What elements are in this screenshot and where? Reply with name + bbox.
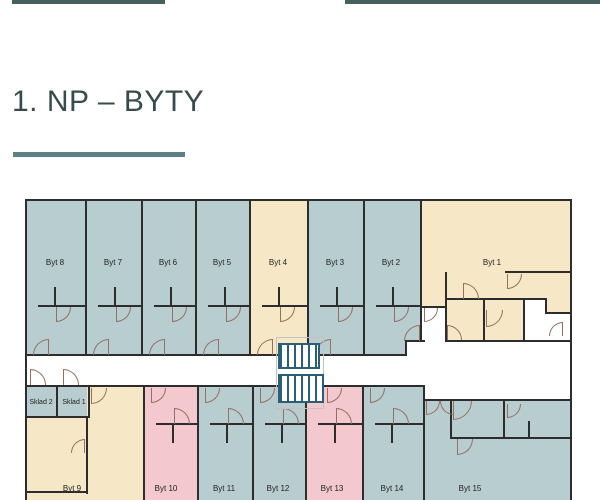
room-label: Byt 8 bbox=[46, 258, 64, 267]
wall bbox=[224, 287, 226, 307]
room-label: Byt 1 bbox=[483, 258, 501, 267]
wall bbox=[56, 385, 58, 418]
wall bbox=[503, 437, 572, 439]
wall bbox=[420, 199, 422, 342]
room-byt-6[interactable] bbox=[141, 200, 195, 356]
wall bbox=[545, 312, 572, 314]
room-label: Byt 6 bbox=[159, 258, 177, 267]
page: 1. NP – BYTY Byt 8Byt 7Byt 6Byt 5Byt 4By… bbox=[0, 0, 600, 500]
door-arc-icon bbox=[30, 369, 46, 385]
wall bbox=[392, 287, 394, 307]
room-byt-8[interactable] bbox=[25, 200, 85, 356]
wall bbox=[445, 340, 572, 342]
wall bbox=[570, 199, 572, 500]
wall bbox=[423, 399, 425, 500]
wall bbox=[141, 199, 143, 356]
floor-plan: Byt 8Byt 7Byt 6Byt 5Byt 4Byt 3Byt 2Byt 1… bbox=[0, 0, 600, 500]
room-label: Byt 11 bbox=[213, 484, 235, 493]
room-byt-3[interactable] bbox=[307, 200, 363, 356]
room-byt-2[interactable] bbox=[363, 200, 420, 342]
room-label: Byt 13 bbox=[321, 484, 344, 493]
room-byt-9-b[interactable] bbox=[87, 387, 143, 500]
wall bbox=[170, 287, 172, 307]
wall bbox=[307, 199, 309, 356]
wall bbox=[86, 418, 88, 494]
room-label: Byt 2 bbox=[382, 258, 400, 267]
room-label: Byt 4 bbox=[269, 258, 287, 267]
wall bbox=[503, 399, 505, 439]
room-byt-15[interactable] bbox=[423, 400, 572, 500]
room-label: Byt 7 bbox=[104, 258, 122, 267]
room-label: Byt 14 bbox=[381, 484, 404, 493]
wall bbox=[334, 423, 336, 443]
room-label: Byt 5 bbox=[213, 258, 231, 267]
wall bbox=[25, 199, 572, 201]
wall bbox=[172, 423, 174, 443]
wall bbox=[363, 199, 365, 356]
wall bbox=[447, 298, 547, 300]
room-label: Sklad 2 bbox=[29, 399, 52, 406]
staircase-icon bbox=[278, 343, 320, 369]
wall bbox=[278, 287, 280, 307]
room-byt-4[interactable] bbox=[249, 200, 307, 356]
room-label: Byt 9 bbox=[63, 484, 81, 493]
wall bbox=[195, 199, 197, 356]
area-byt1-tech-left bbox=[525, 300, 547, 342]
door-arc-icon bbox=[63, 369, 79, 385]
wall bbox=[88, 385, 90, 418]
wall bbox=[405, 341, 407, 356]
wall bbox=[114, 287, 116, 307]
wall bbox=[143, 385, 145, 500]
wall bbox=[249, 199, 251, 356]
wall bbox=[528, 421, 530, 437]
wall bbox=[391, 423, 393, 443]
wall bbox=[336, 287, 338, 307]
wall bbox=[505, 271, 572, 273]
room-label: Byt 15 bbox=[459, 484, 482, 493]
room-label: Byt 10 bbox=[155, 484, 178, 493]
wall bbox=[252, 385, 254, 500]
wall bbox=[362, 385, 364, 500]
wall bbox=[483, 298, 485, 342]
wall bbox=[197, 385, 199, 500]
room-label: Byt 12 bbox=[267, 484, 290, 493]
wall bbox=[281, 423, 283, 443]
wall bbox=[226, 423, 228, 443]
wall bbox=[25, 199, 27, 500]
room-byt-7[interactable] bbox=[85, 200, 141, 356]
wall bbox=[523, 298, 525, 342]
wall bbox=[25, 385, 425, 387]
wall bbox=[25, 416, 90, 418]
room-label: Sklad 1 bbox=[62, 399, 85, 406]
room-byt-5[interactable] bbox=[195, 200, 249, 356]
wall bbox=[85, 199, 87, 356]
room-label: Byt 3 bbox=[326, 258, 344, 267]
staircase-icon bbox=[278, 374, 324, 403]
wall bbox=[54, 287, 56, 307]
